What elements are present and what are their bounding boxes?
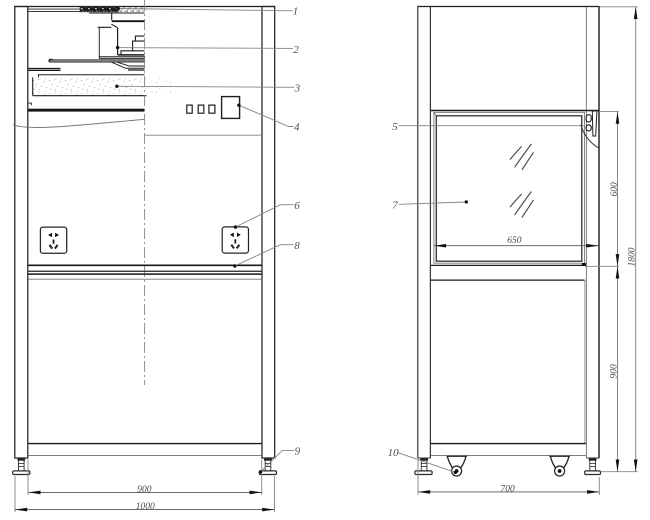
svg-text:1000: 1000 [136, 502, 155, 512]
svg-text:4: 4 [294, 122, 300, 134]
svg-text:900: 900 [610, 364, 620, 379]
svg-text:9: 9 [295, 446, 301, 458]
svg-text:600: 600 [610, 182, 620, 197]
svg-text:650: 650 [507, 236, 522, 246]
svg-text:7: 7 [392, 199, 398, 211]
svg-text:2: 2 [293, 44, 299, 56]
svg-text:8: 8 [294, 240, 300, 252]
svg-text:5: 5 [392, 121, 398, 133]
svg-text:10: 10 [388, 447, 400, 459]
svg-text:1800: 1800 [628, 247, 638, 266]
svg-text:3: 3 [294, 82, 301, 94]
svg-text:700: 700 [501, 484, 516, 494]
svg-text:1: 1 [293, 6, 299, 18]
svg-text:6: 6 [294, 200, 300, 212]
svg-text:900: 900 [137, 485, 152, 495]
